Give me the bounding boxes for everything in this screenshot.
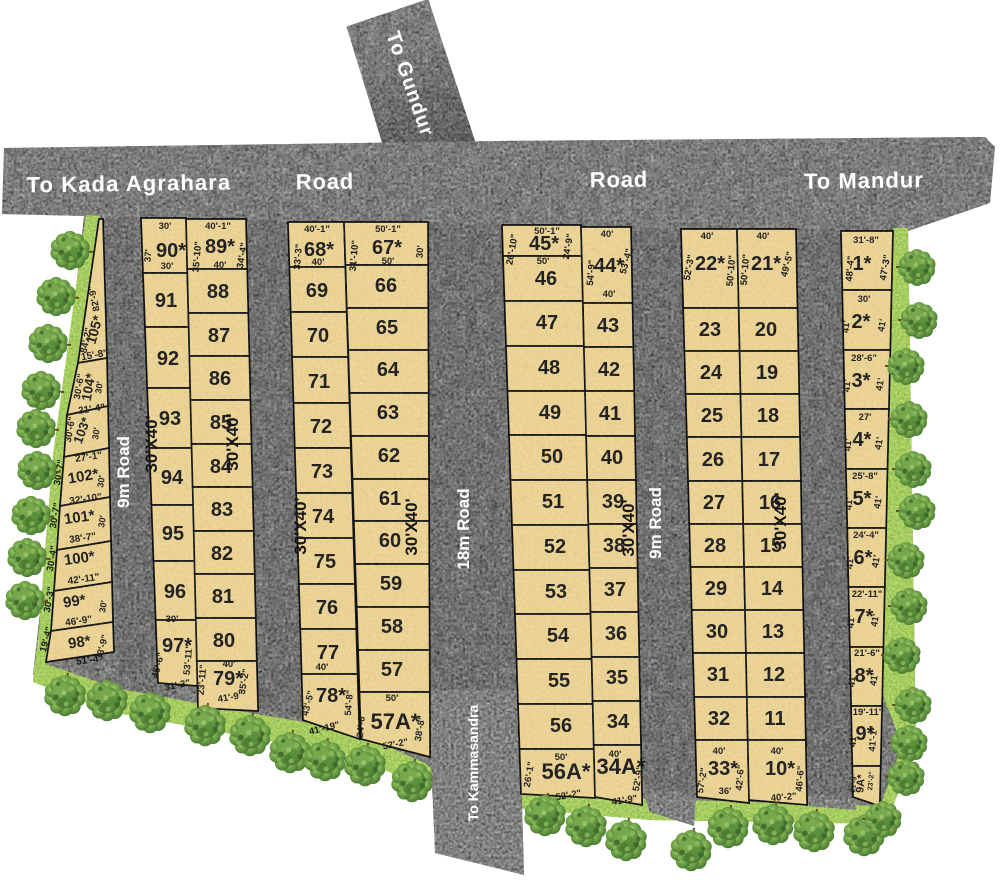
svg-text:9m Road: 9m Road [646, 487, 665, 559]
svg-text:30'X40': 30'X40' [619, 499, 638, 556]
svg-text:30'X40': 30'X40' [771, 492, 790, 549]
svg-text:To Kada Agrahara: To Kada Agrahara [26, 170, 231, 198]
svg-text:9m Road: 9m Road [114, 436, 133, 508]
svg-text:To Mandur: To Mandur [804, 167, 924, 194]
svg-text:30'X40': 30'X40' [291, 497, 310, 554]
svg-text:30'X40': 30'X40' [142, 415, 161, 472]
svg-text:33'-3": 33'-3" [292, 243, 305, 270]
svg-text:48'-4": 48'-4" [844, 255, 857, 282]
svg-text:30'X40': 30'X40' [402, 498, 421, 555]
svg-text:18m Road: 18m Road [454, 488, 473, 569]
svg-text:Road: Road [590, 167, 649, 193]
svg-text:Road: Road [296, 169, 355, 195]
svg-text:To Kammasandra: To Kammasandra [465, 705, 481, 822]
svg-text:54'-9": 54'-9" [585, 259, 598, 286]
svg-text:30'X40': 30'X40' [223, 413, 242, 470]
